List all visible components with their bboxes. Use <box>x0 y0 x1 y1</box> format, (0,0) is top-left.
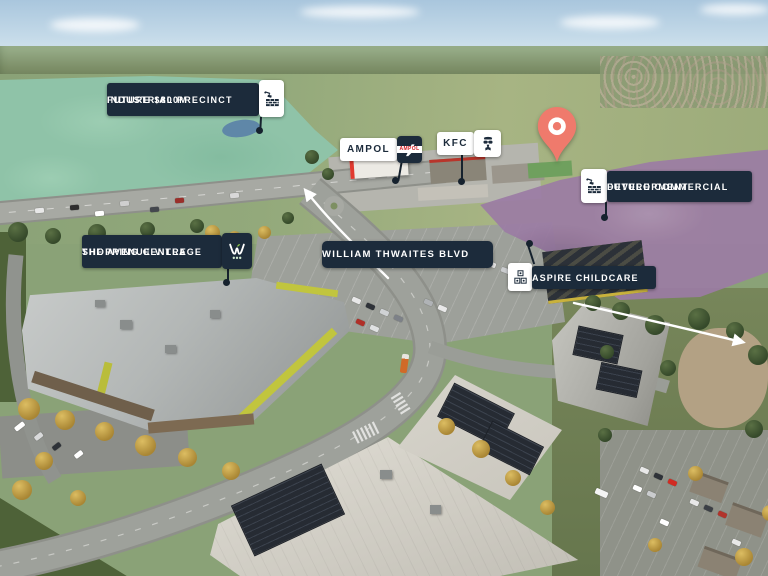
kfc-label-text: KFC <box>443 138 468 149</box>
ampol-label: AMPOL <box>340 138 397 161</box>
leader-dot <box>526 240 533 247</box>
leader-dot <box>601 214 608 221</box>
industrial-precinct-line2: INDUSTRIAL PRECINCT <box>107 94 233 106</box>
boulevard-label-text: WILLIAM THWAITES BLVD <box>322 249 469 260</box>
leader-dot <box>256 127 263 134</box>
woolworths-logo-icon <box>222 233 252 269</box>
shopping-centre-line2: SHOPPING CENTRE <box>82 246 187 258</box>
boulevard-label: WILLIAM THWAITES BLVD <box>322 241 493 268</box>
ampol-logo-wordmark: AMPOL <box>397 146 422 153</box>
construction-crane-brick-icon <box>259 80 284 117</box>
commercial-development-line2: DEVELOPMENT <box>607 181 689 193</box>
leader-dot <box>458 178 465 185</box>
aerial-site-map: FUTURE $800M INDUSTRIAL PRECINCT AMPOL A… <box>0 0 768 576</box>
location-pin-icon <box>536 106 578 164</box>
ampol-label-text: AMPOL <box>347 144 390 155</box>
toy-blocks-icon <box>508 263 532 291</box>
construction-crane-brick-icon <box>581 169 607 203</box>
leader-dot <box>392 177 399 184</box>
childcare-label-text: ASPIRE CHILDCARE <box>532 273 639 283</box>
commercial-development-label: FUTURE COMMERCIAL DEVELOPMENT <box>607 171 752 202</box>
kfc-label: KFC <box>437 132 474 155</box>
leader-line <box>461 154 463 181</box>
industrial-precinct-label: FUTURE $800M INDUSTRIAL PRECINCT <box>107 83 259 116</box>
kfc-colonel-icon <box>474 130 501 157</box>
childcare-label: ASPIRE CHILDCARE <box>532 266 656 289</box>
site-access-arrow <box>574 303 742 342</box>
ampol-logo-icon: AMPOL <box>397 136 422 163</box>
leader-dot <box>223 279 230 286</box>
shopping-centre-label: THE AVENUE VILLAGE SHOPPING CENTRE <box>82 235 222 268</box>
